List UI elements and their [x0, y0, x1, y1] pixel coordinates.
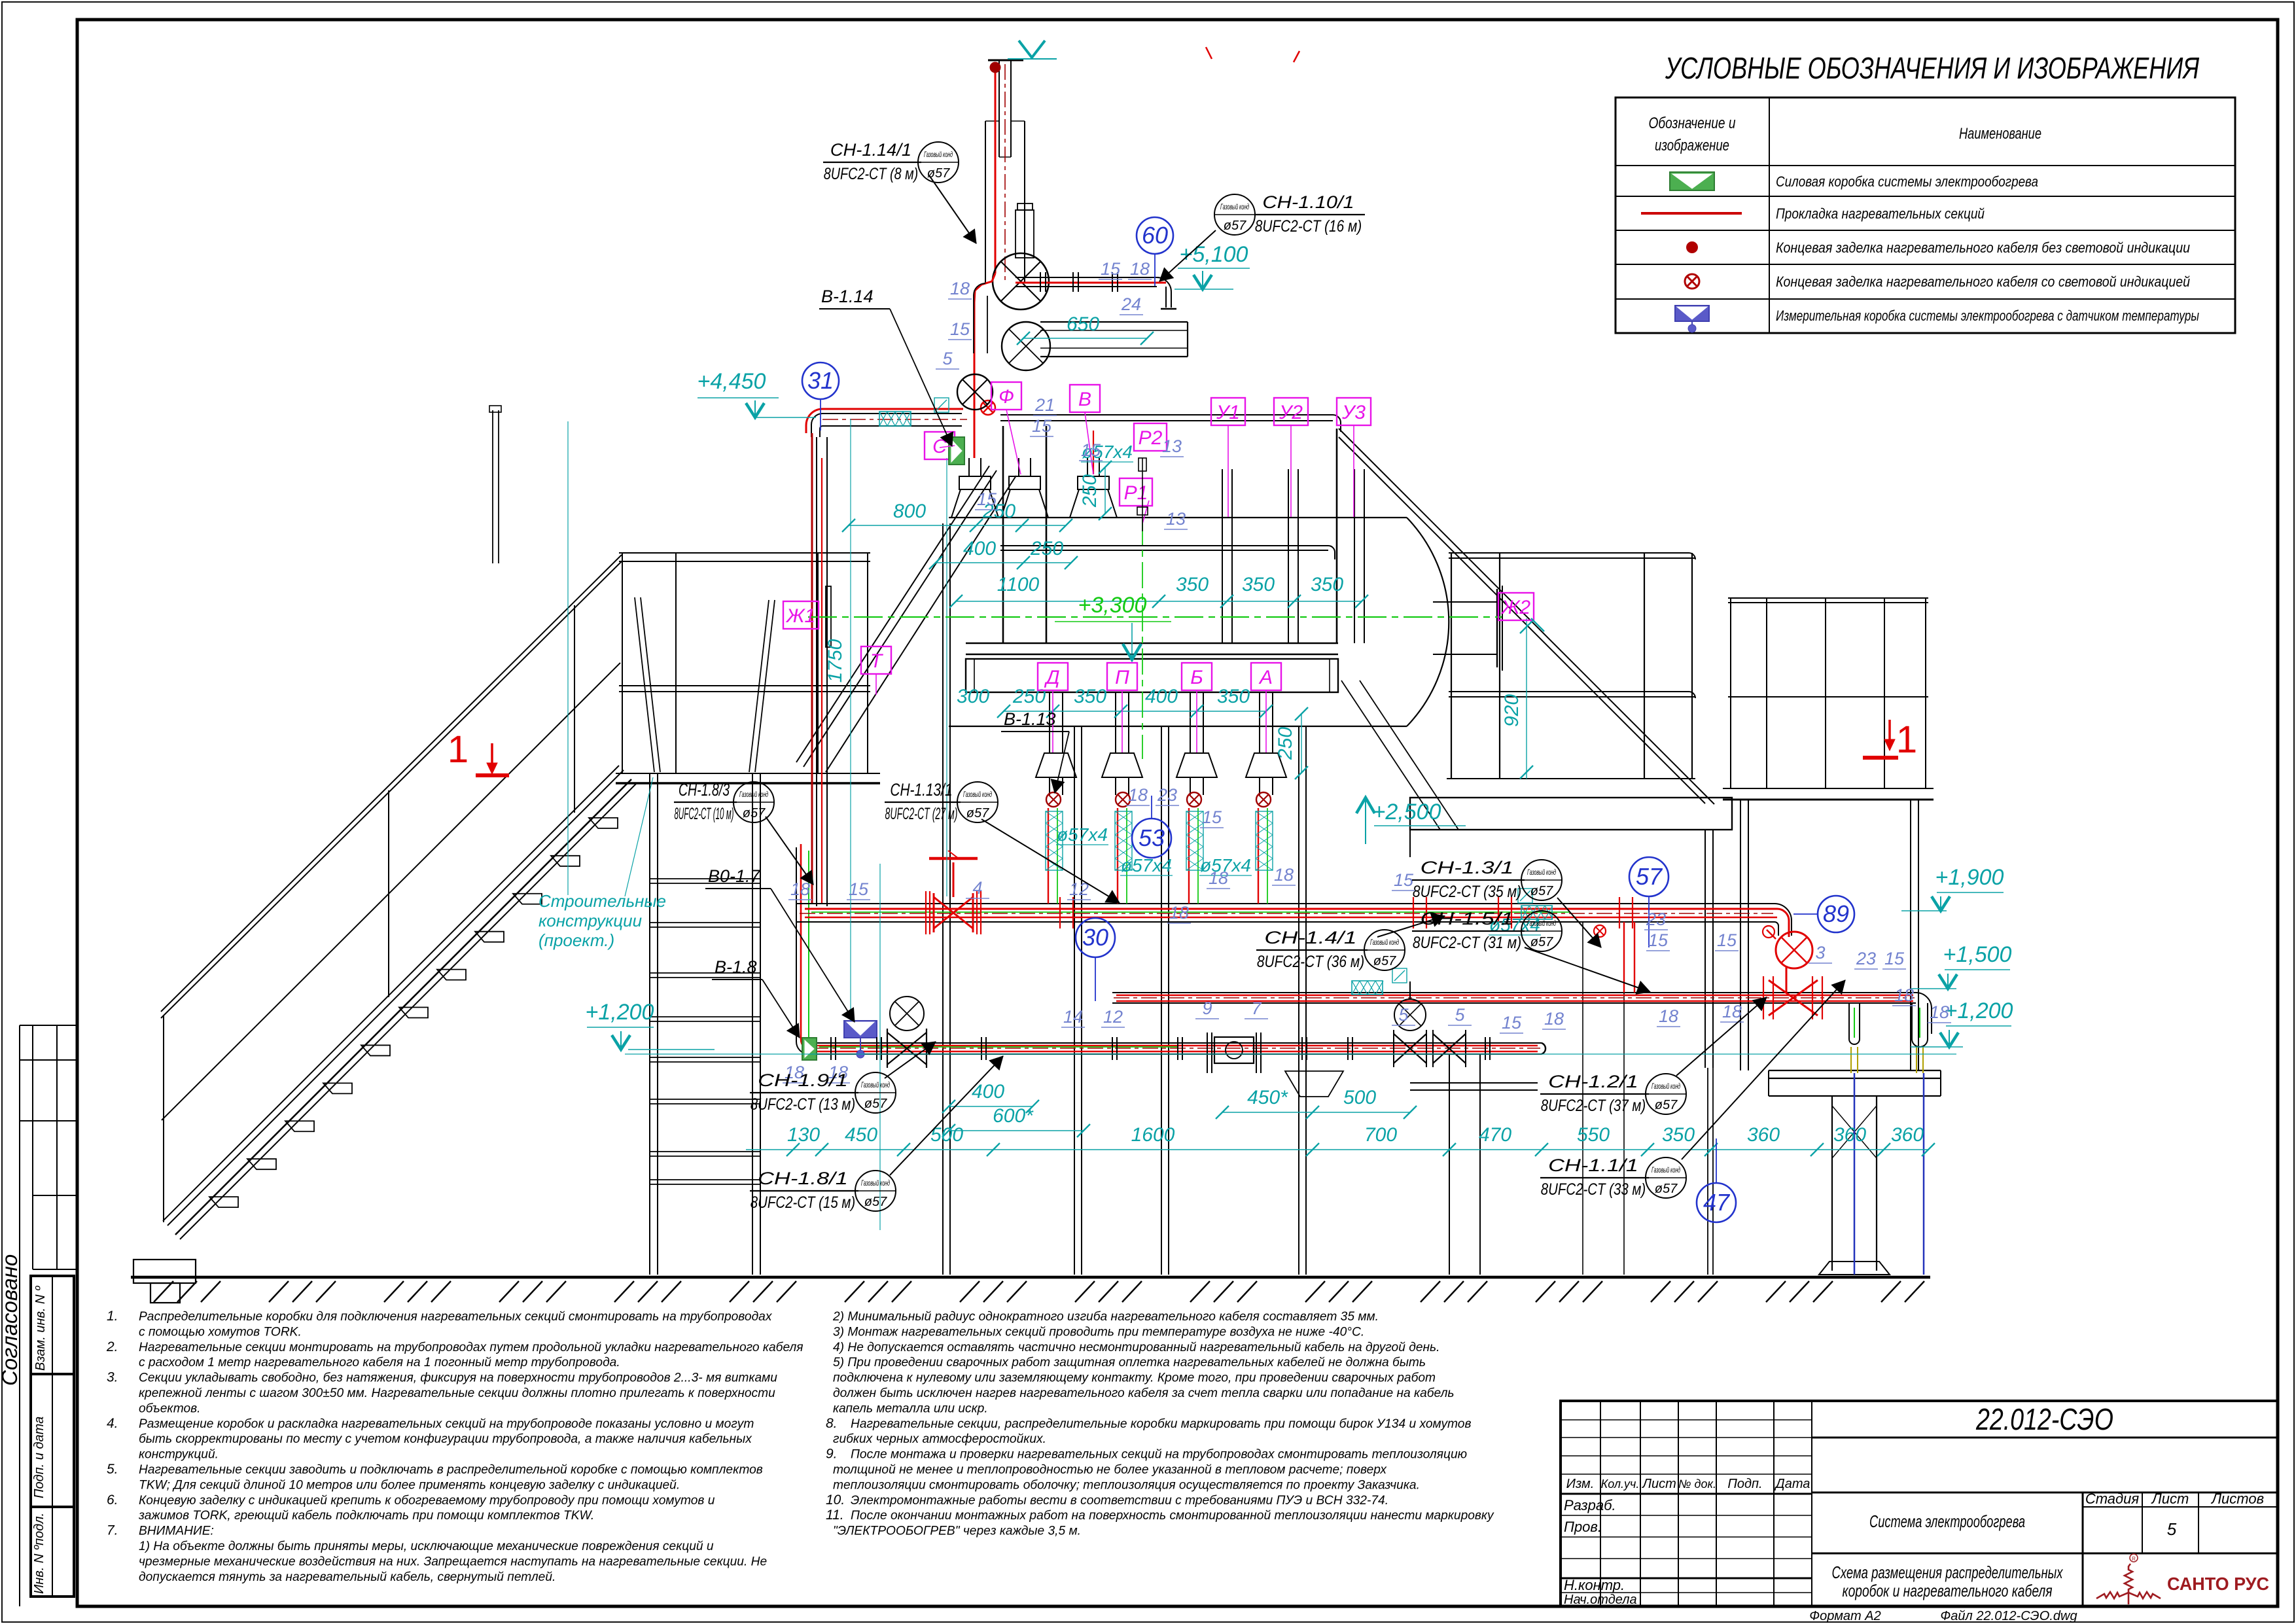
svg-text:+2,500: +2,500 [1373, 800, 1441, 824]
svg-text:9.: 9. [826, 1447, 838, 1462]
svg-text:15: 15 [1502, 1013, 1522, 1033]
svg-text:П: П [1115, 667, 1129, 688]
svg-text:конструкций.: конструкций. [139, 1448, 219, 1462]
svg-text:чрезмерные механические воздей: чрезмерные механические воздействия на н… [139, 1555, 767, 1568]
svg-text:31: 31 [807, 367, 834, 394]
svg-text:7.: 7. [107, 1523, 118, 1538]
svg-text:ø57x4: ø57x4 [1121, 855, 1172, 875]
svg-text:3) Монтаж нагревательных секц: 3) Монтаж нагревательных секций проводит… [833, 1325, 1364, 1339]
svg-text:18: 18 [1722, 1002, 1742, 1021]
svg-text:18: 18 [1209, 868, 1228, 888]
svg-text:Обозначение и: Обозначение и [1649, 115, 1736, 132]
svg-text:Лист: Лист [1641, 1477, 1676, 1491]
svg-text:400: 400 [1145, 686, 1178, 707]
svg-text:Подп. и дата: Подп. и дата [32, 1417, 46, 1498]
svg-text:теплоизоляции смонтировать обо: теплоизоляции смонтировать оболочку; теп… [833, 1478, 1420, 1492]
svg-text:В-1.14: В-1.14 [821, 287, 874, 306]
svg-text:10.: 10. [826, 1492, 845, 1508]
svg-text:Пров.: Пров. [1564, 1519, 1602, 1535]
svg-text:Газовый конд: Газовый конд [1651, 1083, 1680, 1091]
svg-text:5: 5 [942, 349, 953, 368]
svg-text:Разраб.: Разраб. [1564, 1497, 1616, 1513]
svg-text:250: 250 [1079, 474, 1101, 508]
svg-text:22.012-СЭО: 22.012-СЭО [1975, 1402, 2113, 1436]
svg-text:350: 350 [1311, 574, 1343, 595]
svg-text:2.: 2. [106, 1339, 118, 1354]
svg-text:30: 30 [1082, 924, 1108, 951]
svg-text:1600: 1600 [1131, 1124, 1175, 1146]
svg-text:12: 12 [1103, 1007, 1123, 1027]
svg-text:Дата: Дата [1775, 1477, 1810, 1491]
svg-text:ø57: ø57 [1530, 884, 1553, 898]
svg-text:Стадия: Стадия [2085, 1491, 2140, 1507]
svg-text:СН-1.8/1: СН-1.8/1 [758, 1169, 848, 1188]
svg-text:Взам. инв. N º: Взам. инв. N º [33, 1285, 48, 1371]
svg-text:Концевая заделка нагревательно: Концевая заделка нагревательного кабеля … [1776, 274, 2190, 290]
svg-text:(проект.): (проект.) [539, 930, 614, 950]
svg-text:ø57: ø57 [966, 806, 989, 821]
svg-text:8UFC2-CT (27 м): 8UFC2-CT (27 м) [885, 805, 958, 823]
svg-text:4.: 4. [107, 1416, 118, 1431]
svg-text:8UFC2-CT (16 м): 8UFC2-CT (16 м) [1255, 217, 1362, 236]
svg-text:18: 18 [1130, 259, 1150, 279]
svg-text:А: А [1258, 667, 1273, 688]
svg-text:18: 18 [1659, 1006, 1678, 1026]
svg-text:Газовый конд: Газовый конд [1651, 1167, 1680, 1174]
svg-text:18: 18 [1544, 1009, 1564, 1029]
svg-text:23: 23 [1646, 909, 1666, 929]
svg-text:Нагревательные секции, распред: Нагревательные секции, распределительные… [851, 1417, 1472, 1431]
svg-text:18: 18 [1274, 865, 1294, 885]
svg-text:15: 15 [1394, 870, 1414, 890]
svg-text:15: 15 [1648, 930, 1669, 950]
svg-text:Газовый конд: Газовый конд [739, 791, 768, 799]
svg-text:Изм.: Изм. [1566, 1477, 1595, 1491]
svg-text:350: 350 [1074, 686, 1106, 707]
svg-text:Н.контр.: Н.контр. [1564, 1577, 1625, 1593]
svg-text:9: 9 [1202, 998, 1212, 1018]
svg-text:Система электрообогрева: Система электрообогрева [1869, 1511, 2025, 1531]
svg-text:Наименование: Наименование [1959, 125, 2041, 143]
svg-text:Газовый конд: Газовый конд [1527, 869, 1556, 877]
svg-text:8UFC2-CT (31 м): 8UFC2-CT (31 м) [1413, 934, 1521, 952]
svg-text:ø57: ø57 [1530, 935, 1553, 949]
svg-text:ВНИМАНИЕ:: ВНИМАНИЕ: [139, 1525, 214, 1538]
svg-text:R: R [2132, 1556, 2136, 1562]
svg-text:Подп.: Подп. [1727, 1477, 1762, 1491]
svg-text:+1,200: +1,200 [586, 1000, 654, 1025]
svg-text:18: 18 [790, 879, 810, 899]
svg-text:Схема размещения распределител: Схема размещения распределительных [1832, 1562, 2064, 1582]
svg-text:Размещение коробок и раскладка: Размещение коробок и раскладка нагревате… [139, 1417, 754, 1431]
svg-text:Р2: Р2 [1139, 427, 1163, 449]
svg-text:Файл 22.012-СЭО.dwg: Файл 22.012-СЭО.dwg [1940, 1609, 2077, 1623]
svg-text:15: 15 [1101, 259, 1121, 279]
svg-text:Р1: Р1 [1124, 482, 1148, 504]
svg-text:капель металла или искр.: капель металла или искр. [833, 1402, 988, 1415]
svg-text:350: 350 [1176, 574, 1209, 595]
svg-text:Нач.отдела: Нач.отдела [1564, 1593, 1637, 1607]
svg-text:подключена к нулевому или зазе: подключена к нулевому или заземляющему к… [833, 1371, 1436, 1385]
svg-text:250: 250 [1030, 538, 1063, 559]
svg-text:1.: 1. [107, 1309, 118, 1324]
svg-text:350: 350 [1662, 1124, 1695, 1146]
svg-text:быть скорректированы по месту: быть скорректированы по месту с учетом к… [139, 1432, 752, 1446]
svg-text:3.: 3. [107, 1370, 118, 1385]
svg-text:18: 18 [1930, 1002, 1949, 1022]
svg-text:Газовый конд: Газовый конд [1527, 920, 1556, 928]
svg-text:350: 350 [1242, 574, 1275, 595]
svg-text:ø57: ø57 [1224, 219, 1246, 233]
svg-text:15: 15 [1032, 416, 1052, 436]
svg-text:6.: 6. [107, 1492, 118, 1508]
svg-text:7: 7 [1251, 998, 1262, 1018]
svg-text:Измерительная коробка системы: Измерительная коробка системы электрообо… [1776, 308, 2199, 324]
svg-text:СН-1.10/1: СН-1.10/1 [1262, 192, 1354, 212]
svg-text:14: 14 [1063, 1007, 1083, 1027]
svg-text:1: 1 [1896, 718, 1917, 761]
svg-text:650: 650 [1067, 313, 1099, 335]
svg-text:толщиной не менее и теплопрово: толщиной не менее и теплопроводностью не… [833, 1463, 1387, 1477]
svg-text:550: 550 [1577, 1124, 1610, 1146]
svg-text:Кол.уч.: Кол.уч. [1601, 1477, 1640, 1491]
svg-text:15: 15 [849, 879, 869, 899]
svg-text:18: 18 [1894, 985, 1914, 1005]
svg-text:+1,200: +1,200 [1945, 998, 2013, 1023]
svg-text:500: 500 [1343, 1087, 1376, 1108]
svg-text:Газовый конд: Газовый конд [924, 151, 953, 159]
svg-text:5: 5 [1455, 1005, 1465, 1025]
svg-text:У2: У2 [1279, 402, 1303, 423]
svg-text:СН-1.8/3: СН-1.8/3 [679, 780, 730, 800]
svg-text:8.: 8. [826, 1416, 838, 1431]
svg-text:5: 5 [1398, 1005, 1409, 1025]
svg-text:"ЭЛЕКТРООБОГРЕВ" через каждые: "ЭЛЕКТРООБОГРЕВ" через каждые 3,5 м. [833, 1525, 1081, 1538]
svg-text:8UFC2-CT (8 м): 8UFC2-CT (8 м) [824, 165, 919, 183]
svg-text:24: 24 [1121, 294, 1141, 314]
svg-text:53: 53 [1139, 824, 1165, 851]
svg-text:8UFC2-CT (13 м): 8UFC2-CT (13 м) [751, 1095, 855, 1114]
svg-text:15: 15 [1884, 949, 1905, 968]
svg-text:+1,500: +1,500 [1943, 942, 2012, 967]
svg-text:18: 18 [950, 279, 970, 298]
svg-text:Ж2: Ж2 [1500, 597, 1531, 618]
svg-text:конструкции: конструкции [539, 911, 642, 930]
svg-text:В-1.13: В-1.13 [1004, 709, 1056, 729]
svg-text:5.: 5. [107, 1462, 118, 1477]
svg-text:1) На объекте должны быть прин: 1) На объекте должны быть приняты меры, … [139, 1540, 714, 1553]
svg-text:8UFC2-CT (10 м): 8UFC2-CT (10 м) [674, 805, 733, 823]
svg-text:СН-1.4/1: СН-1.4/1 [1264, 928, 1356, 947]
svg-text:Газовый конд: Газовый конд [861, 1180, 890, 1188]
svg-text:2) Минимальный радиус однокра: 2) Минимальный радиус однократного изгиб… [832, 1310, 1379, 1324]
svg-text:11.: 11. [826, 1508, 844, 1523]
svg-text:+1,900: +1,900 [1935, 865, 2004, 890]
svg-text:8UFC2-CT (37 м): 8UFC2-CT (37 м) [1541, 1097, 1646, 1115]
svg-text:3: 3 [1815, 943, 1825, 962]
svg-text:с расходом 1 метр нагревательн: с расходом 1 метр нагревательного кабеля… [139, 1356, 620, 1369]
svg-text:450*: 450* [1247, 1087, 1288, 1108]
svg-text:1: 1 [448, 728, 468, 771]
svg-text:№ док.: № док. [1678, 1477, 1716, 1491]
svg-text:89: 89 [1823, 900, 1849, 927]
svg-text:Б: Б [1190, 667, 1203, 688]
svg-text:360: 360 [1833, 1124, 1866, 1146]
svg-text:Газовый конд: Газовый конд [1220, 203, 1249, 211]
svg-text:Газовый конд: Газовый конд [963, 791, 992, 799]
svg-text:920: 920 [1501, 694, 1523, 727]
svg-text:объектов.: объектов. [139, 1402, 200, 1415]
svg-text:15: 15 [1717, 930, 1737, 950]
svg-text:Нагревательные секции заводить: Нагревательные секции заводить и подключ… [139, 1463, 763, 1477]
svg-text:60: 60 [1142, 222, 1168, 249]
svg-text:250: 250 [1012, 686, 1046, 707]
svg-text:ø57: ø57 [1655, 1098, 1678, 1112]
svg-text:ø57: ø57 [1373, 954, 1396, 968]
svg-text:должен быть исключен нагрев на: должен быть исключен нагрев нагревательн… [833, 1386, 1455, 1400]
svg-text:ø57: ø57 [1655, 1182, 1678, 1196]
svg-text:Концевую заделку с индикацией: Концевую заделку с индикацией крепить к … [139, 1494, 715, 1508]
svg-text:Листов: Листов [2210, 1491, 2264, 1507]
svg-text:5) При проведении сварочных р: 5) При проведении сварочных работ защитн… [833, 1356, 1426, 1369]
svg-text:У1: У1 [1216, 402, 1240, 423]
svg-text:8UFC2-CT (15 м): 8UFC2-CT (15 м) [751, 1193, 855, 1212]
svg-text:Строительные: Строительные [539, 891, 666, 911]
svg-text:8UFC2-CT (36 м): 8UFC2-CT (36 м) [1257, 953, 1364, 971]
svg-text:8UFC2-CT (33 м): 8UFC2-CT (33 м) [1541, 1180, 1646, 1199]
svg-text:В-1.8: В-1.8 [715, 957, 757, 977]
svg-text:зажимов TORK, греющий кабель п: зажимов TORK, греющий кабель подключать … [138, 1509, 594, 1523]
svg-text:450: 450 [845, 1124, 877, 1146]
svg-text:СН-1.1/1: СН-1.1/1 [1548, 1156, 1638, 1175]
svg-text:В: В [1078, 389, 1091, 410]
svg-text:360: 360 [1891, 1124, 1924, 1146]
svg-text:УСЛОВНЫЕ ОБОЗНАЧЕНИЯ И ИЗОБ: УСЛОВНЫЕ ОБОЗНАЧЕНИЯ И ИЗОБРАЖЕНИЯ [1665, 51, 2199, 85]
svg-text:изображение: изображение [1655, 137, 1729, 154]
svg-text:Прокладка нагревательных секци: Прокладка нагревательных секций [1776, 205, 1985, 222]
svg-text:800: 800 [893, 501, 926, 522]
svg-text:Инв. N ºподл.: Инв. N ºподл. [32, 1513, 46, 1594]
svg-text:Силовая коробка системы электр: Силовая коробка системы электрообогрева [1776, 173, 2038, 190]
svg-text:600*: 600* [993, 1105, 1034, 1127]
svg-text:1100: 1100 [997, 574, 1040, 595]
svg-text:Ж1: Ж1 [785, 605, 815, 627]
svg-text:Ф: Ф [998, 386, 1014, 408]
svg-text:+4,450: +4,450 [698, 369, 766, 394]
svg-text:Согласовано: Согласовано [0, 1254, 22, 1386]
svg-text:ø57: ø57 [743, 806, 766, 821]
svg-text:4) Не допускается оставлять ч: 4) Не допускается оставлять частично нес… [833, 1341, 1439, 1354]
svg-text:После монтажа и проверки нагре: После монтажа и проверки нагревательных … [851, 1448, 1467, 1462]
svg-text:Т: Т [870, 650, 884, 672]
svg-text:САНТО РУС: САНТО РУС [2167, 1574, 2269, 1594]
svg-text:18: 18 [1169, 903, 1189, 923]
svg-text:Секции укладывать свободно, бе: Секции укладывать свободно, без натяжени… [139, 1371, 777, 1385]
svg-text:После окончании монтажных рабо: После окончании монтажных работ на повер… [851, 1509, 1494, 1523]
svg-text:4: 4 [972, 878, 982, 898]
svg-text:13: 13 [1166, 509, 1186, 529]
svg-text:СН-1.9/1: СН-1.9/1 [758, 1070, 848, 1090]
svg-text:21: 21 [1034, 395, 1055, 415]
svg-text:360: 360 [1747, 1124, 1780, 1146]
svg-text:400: 400 [963, 538, 996, 559]
svg-text:допускается тянуть за нагреват: допускается тянуть за нагревательный каб… [139, 1570, 556, 1584]
svg-text:крепежной ленты с шагом 300±50: крепежной ленты с шагом 300±50 мм. Нагре… [139, 1386, 775, 1400]
svg-text:TKW; Для секций длиной 10 мет: TKW; Для секций длиной 10 метров или бол… [139, 1478, 680, 1492]
svg-text:15: 15 [977, 489, 997, 509]
svg-text:18: 18 [1128, 785, 1148, 805]
svg-text:СН-1.2/1: СН-1.2/1 [1548, 1072, 1638, 1091]
svg-text:У3: У3 [1341, 402, 1366, 423]
svg-text:300: 300 [957, 686, 989, 707]
svg-text:СН-1.14/1: СН-1.14/1 [830, 140, 911, 160]
svg-text:Нагревательные секции монтиров: Нагревательные секции монтировать на тру… [139, 1341, 804, 1354]
svg-text:ø57x4: ø57x4 [1057, 824, 1108, 845]
svg-text:250: 250 [1275, 727, 1296, 760]
svg-text:Лист: Лист [2151, 1491, 2189, 1507]
svg-text:57: 57 [1636, 863, 1663, 890]
svg-text:гибких черных атмосферостойких: гибких черных атмосферостойких. [833, 1432, 1046, 1446]
svg-text:13: 13 [1162, 436, 1182, 456]
svg-text:1750: 1750 [824, 639, 846, 682]
svg-text:Газовый конд: Газовый конд [1370, 939, 1399, 947]
svg-text:350: 350 [1217, 686, 1250, 707]
svg-text:23: 23 [1856, 949, 1876, 968]
svg-text:Д: Д [1044, 667, 1059, 688]
svg-text:15: 15 [1202, 807, 1222, 827]
svg-text:15: 15 [950, 319, 970, 339]
svg-text:ø57: ø57 [864, 1097, 887, 1111]
svg-text:470: 470 [1479, 1124, 1511, 1146]
svg-text:Газовый конд: Газовый конд [861, 1082, 890, 1089]
svg-text:Формат А2: Формат А2 [1809, 1609, 1881, 1623]
svg-text:5: 5 [2167, 1519, 2177, 1539]
svg-text:В0-1.7: В0-1.7 [708, 866, 761, 886]
svg-text:23: 23 [1157, 785, 1177, 805]
svg-text:СН-1.13/1: СН-1.13/1 [890, 780, 952, 800]
svg-text:130: 130 [787, 1124, 820, 1146]
svg-text:47: 47 [1703, 1189, 1731, 1216]
svg-text:с помощью хомутов TORK.: с помощью хомутов TORK. [139, 1325, 302, 1339]
svg-text:Концевая заделка нагревательно: Концевая заделка нагревательного кабеля … [1776, 239, 2190, 256]
svg-text:Распределительные коробки для: Распределительные коробки для подключени… [139, 1310, 773, 1324]
svg-text:ø57: ø57 [864, 1195, 887, 1209]
svg-text:700: 700 [1364, 1124, 1397, 1146]
svg-text:Электромонтажные работы вести: Электромонтажные работы вести в соответс… [851, 1494, 1388, 1508]
svg-text:коробок и нагревательного кабе: коробок и нагревательного кабеля [1843, 1581, 2053, 1600]
svg-text:15: 15 [1081, 440, 1101, 460]
svg-text:+3,300: +3,300 [1078, 593, 1147, 618]
svg-text:8UFC2-CT (35 м): 8UFC2-CT (35 м) [1413, 883, 1521, 901]
svg-text:СН-1.3/1: СН-1.3/1 [1421, 858, 1514, 877]
